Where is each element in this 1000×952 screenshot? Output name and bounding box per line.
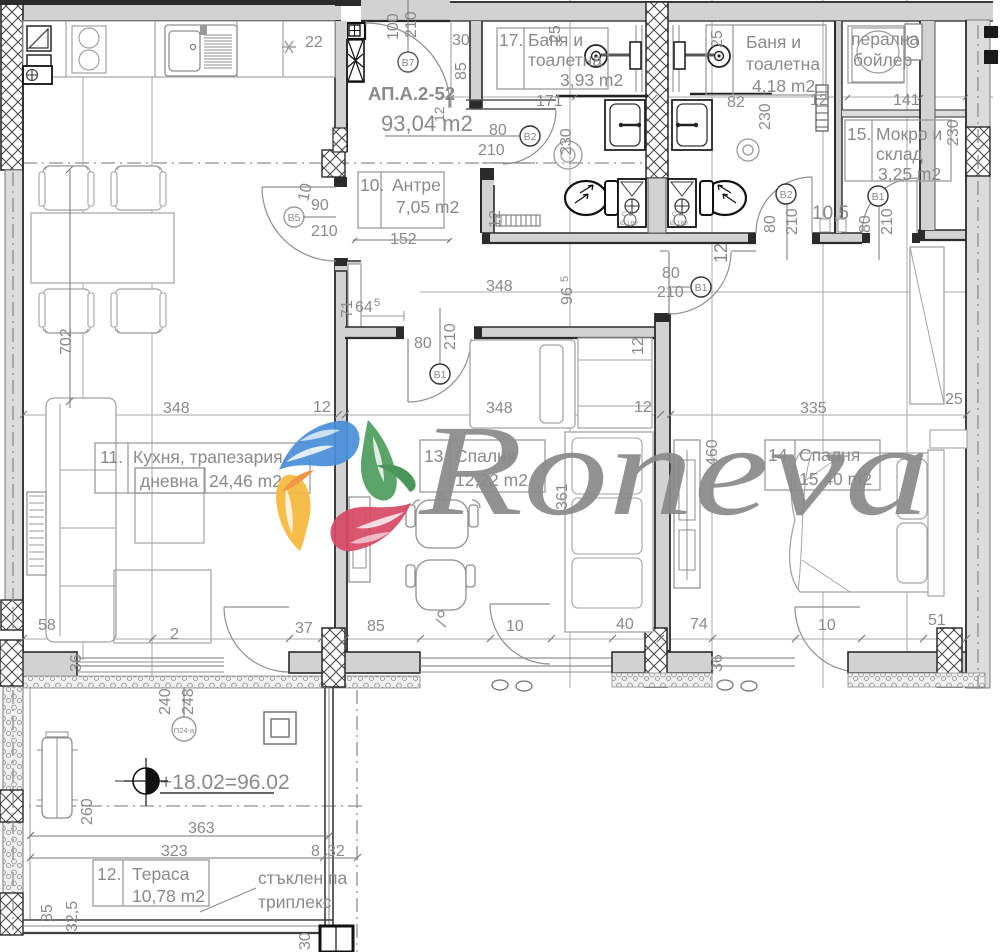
svg-text:5: 5 <box>559 276 571 282</box>
svg-text:85: 85 <box>453 62 470 80</box>
svg-text:80: 80 <box>762 215 779 233</box>
svg-text:склад: склад <box>876 144 923 164</box>
svg-text:15.: 15. <box>847 124 871 144</box>
svg-text:141: 141 <box>893 92 920 109</box>
svg-text:C-2: C-2 <box>672 211 683 218</box>
svg-text:363: 363 <box>188 820 215 837</box>
svg-text:37: 37 <box>295 620 313 637</box>
svg-text:B1: B1 <box>872 191 885 203</box>
svg-text:8: 8 <box>311 843 320 860</box>
svg-text:230: 230 <box>558 128 575 155</box>
svg-text:80: 80 <box>414 335 432 352</box>
svg-text:C-2: C-2 <box>622 211 633 218</box>
svg-text:24,46 m2: 24,46 m2 <box>209 471 282 491</box>
svg-text:АП.А.2-52: АП.А.2-52 <box>368 83 455 104</box>
svg-text:B1: B1 <box>695 282 708 294</box>
svg-text:32,5: 32,5 <box>64 901 81 932</box>
svg-text:100: 100 <box>385 13 402 40</box>
svg-text:90: 90 <box>311 197 329 214</box>
svg-text:230: 230 <box>757 103 774 130</box>
svg-text:12.: 12. <box>97 864 121 884</box>
svg-text:B5: B5 <box>288 212 301 224</box>
svg-text:Баня и: Баня и <box>746 32 801 52</box>
svg-text:10: 10 <box>295 182 315 203</box>
svg-text:4,18 m2: 4,18 m2 <box>752 76 815 96</box>
svg-text:22: 22 <box>305 34 323 51</box>
svg-text:стъклен па: стъклен па <box>258 868 348 888</box>
svg-text:230: 230 <box>945 119 962 146</box>
svg-text:702: 702 <box>58 328 75 355</box>
svg-text:248: 248 <box>180 688 197 715</box>
svg-text:+18.02=96.02: +18.02=96.02 <box>160 771 290 794</box>
svg-text:12: 12 <box>810 92 828 109</box>
svg-text:2: 2 <box>170 626 179 643</box>
svg-text:12: 12 <box>630 337 647 355</box>
svg-text:5: 5 <box>374 297 380 309</box>
svg-text:Тераса: Тераса <box>132 864 190 884</box>
svg-text:152: 152 <box>390 231 417 248</box>
svg-text:дневна: дневна <box>140 471 199 491</box>
svg-text:80: 80 <box>857 215 874 233</box>
svg-text:30: 30 <box>297 932 314 950</box>
svg-text:12: 12 <box>431 106 447 122</box>
svg-text:71: 71 <box>339 300 356 318</box>
svg-text:210: 210 <box>403 11 420 38</box>
svg-text:тоалетна: тоалетна <box>746 54 820 74</box>
svg-text:51: 51 <box>928 612 946 629</box>
svg-text:10,5: 10,5 <box>812 203 849 224</box>
svg-text:11.: 11. <box>100 447 123 467</box>
svg-text:348: 348 <box>486 278 513 295</box>
svg-text:B7: B7 <box>402 57 415 69</box>
svg-text:30: 30 <box>452 32 470 49</box>
svg-text:210: 210 <box>311 223 338 240</box>
svg-text:10.: 10. <box>360 175 384 195</box>
svg-text:B2: B2 <box>780 189 793 201</box>
svg-text:93,04 m2: 93,04 m2 <box>381 111 473 136</box>
svg-text:17.: 17. <box>499 30 523 50</box>
svg-text:Ø 160: Ø 160 <box>620 220 638 227</box>
svg-text:Антре: Антре <box>392 175 441 195</box>
svg-text:бойлер: бойлер <box>853 50 912 70</box>
svg-text:348: 348 <box>163 400 190 417</box>
svg-text:25: 25 <box>547 25 564 43</box>
svg-text:32: 32 <box>327 843 345 860</box>
svg-text:тоалетна: тоалетна <box>528 50 602 70</box>
svg-text:210: 210 <box>879 208 896 235</box>
svg-text:36: 36 <box>68 654 85 672</box>
svg-text:B1: B1 <box>434 369 447 381</box>
svg-text:10: 10 <box>818 617 836 634</box>
svg-text:3,25 m2: 3,25 m2 <box>878 164 941 184</box>
svg-text:перална: перална <box>851 29 920 49</box>
svg-text:35: 35 <box>39 904 56 922</box>
svg-text:260: 260 <box>79 798 96 825</box>
svg-text:Ø 160: Ø 160 <box>670 220 688 227</box>
svg-text:10,78 m2: 10,78 m2 <box>132 886 205 906</box>
svg-text:64: 64 <box>355 299 373 316</box>
svg-text:40: 40 <box>616 616 634 633</box>
svg-text:Кухня, трапезария: Кухня, трапезария <box>133 447 283 467</box>
svg-text:10: 10 <box>506 618 524 635</box>
svg-text:74: 74 <box>690 616 708 633</box>
svg-text:12: 12 <box>487 210 504 228</box>
svg-text:240: 240 <box>157 688 174 715</box>
svg-text:171: 171 <box>536 93 563 110</box>
svg-text:58: 58 <box>38 617 56 634</box>
svg-text:П24-а: П24-а <box>174 726 195 735</box>
svg-text:12: 12 <box>711 243 731 263</box>
svg-text:B2: B2 <box>524 131 537 143</box>
svg-text:323: 323 <box>161 843 188 860</box>
svg-text:3,93 m2: 3,93 m2 <box>560 70 623 90</box>
svg-text:12: 12 <box>313 399 331 416</box>
svg-text:210: 210 <box>478 142 505 159</box>
svg-text:210: 210 <box>442 323 459 350</box>
svg-text:85: 85 <box>367 618 385 635</box>
svg-text:96: 96 <box>559 287 576 305</box>
svg-text:25: 25 <box>709 30 726 48</box>
svg-text:Мокро и: Мокро и <box>876 124 942 144</box>
svg-text:36: 36 <box>709 654 726 672</box>
svg-text:82: 82 <box>727 94 745 111</box>
svg-text:триплекс: триплекс <box>258 892 332 912</box>
svg-text:80: 80 <box>662 265 680 282</box>
svg-text:Roneva: Roneva <box>418 398 930 542</box>
svg-text:7,05 m2: 7,05 m2 <box>396 197 459 217</box>
svg-text:25: 25 <box>945 391 963 408</box>
